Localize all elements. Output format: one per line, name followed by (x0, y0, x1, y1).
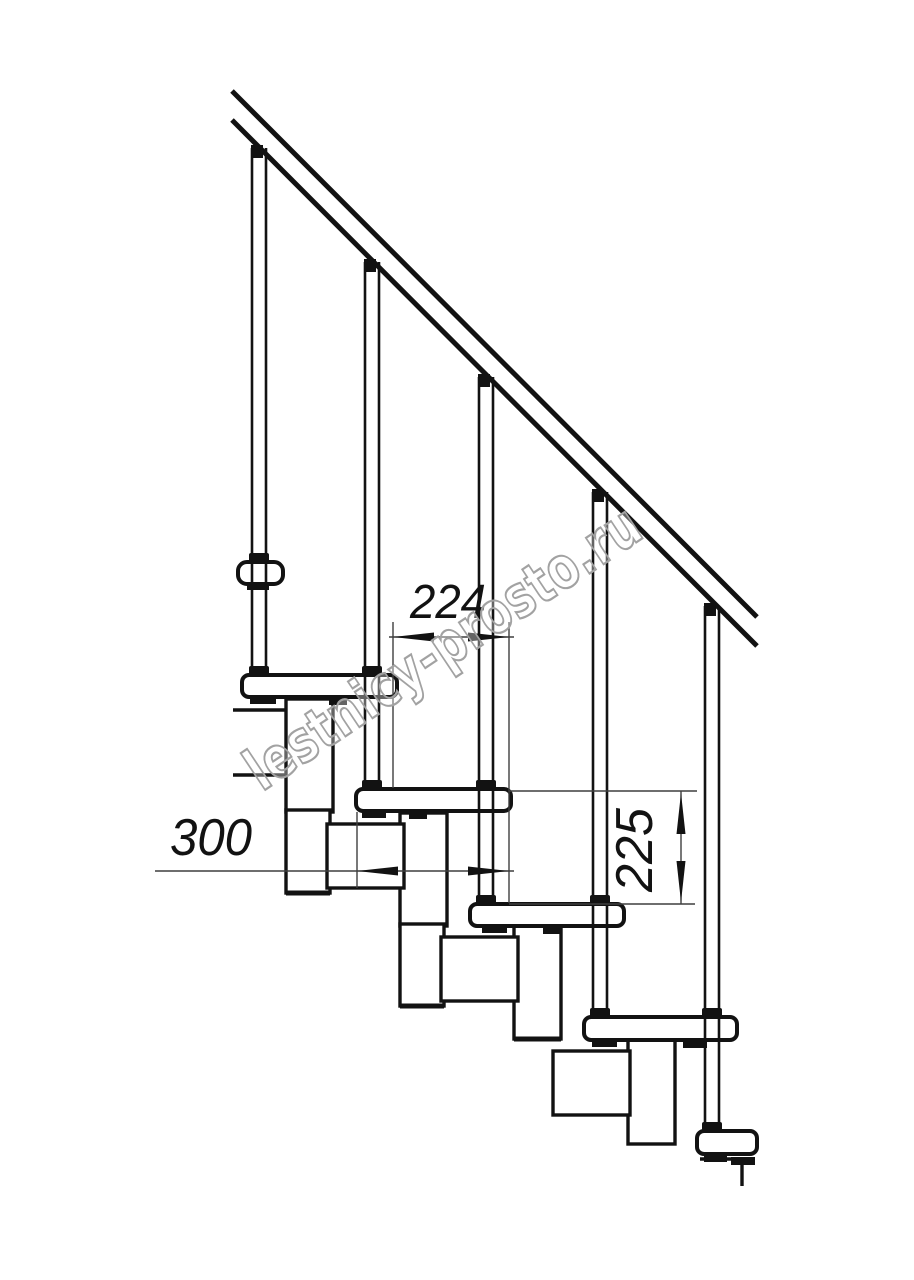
baluster-collar (249, 553, 269, 562)
tread-4 (584, 1017, 737, 1040)
clip (731, 1157, 755, 1165)
staircase-technical-drawing: 224 300 225 lestnicy-prosto.ru (0, 0, 914, 1280)
baluster-collar (702, 1008, 722, 1017)
tread-3 (470, 904, 624, 926)
module-tube-2 (400, 813, 447, 926)
baluster-1 (249, 145, 269, 675)
clip (409, 812, 427, 819)
baluster-collar (362, 780, 382, 789)
baluster-collar (702, 1122, 722, 1131)
clip (250, 697, 276, 704)
watermark-text: lestnicy-prosto.ru (232, 491, 654, 804)
drawing-svg: 224 300 225 lestnicy-prosto.ru (0, 0, 914, 1280)
baluster-5 (702, 603, 722, 1131)
module-tube-3 (514, 926, 561, 1039)
tread-top-cut (238, 562, 283, 584)
clip (543, 927, 560, 934)
module-tube-4 (628, 1040, 675, 1144)
arrowhead-right (468, 867, 509, 876)
tread-2 (356, 789, 511, 811)
clip (704, 1155, 727, 1162)
module-extension-2 (400, 924, 444, 1006)
arrowhead-up (677, 793, 686, 834)
module-box-2 (441, 937, 518, 1001)
baluster-collar (249, 666, 269, 675)
clip (362, 811, 386, 818)
arrowhead-down (677, 861, 686, 902)
handrail-bottom-line (232, 120, 757, 646)
clip (482, 926, 507, 933)
dimension-label-225: 225 (606, 807, 664, 893)
module-extension-1 (286, 810, 330, 893)
baluster-collar (476, 780, 496, 789)
module-box-3 (553, 1051, 630, 1115)
baluster-collar (590, 1008, 610, 1017)
baluster-collar (476, 895, 496, 904)
clip (592, 1040, 617, 1047)
dimension-label-300: 300 (170, 809, 252, 867)
clip (683, 1041, 707, 1048)
tread-bottom-cut (697, 1131, 757, 1154)
handrail (232, 91, 757, 646)
baluster-collar (590, 895, 610, 904)
handrail-top-line (232, 91, 757, 617)
module-box-1 (327, 824, 404, 888)
dimension-step-height: 225 (509, 791, 697, 904)
